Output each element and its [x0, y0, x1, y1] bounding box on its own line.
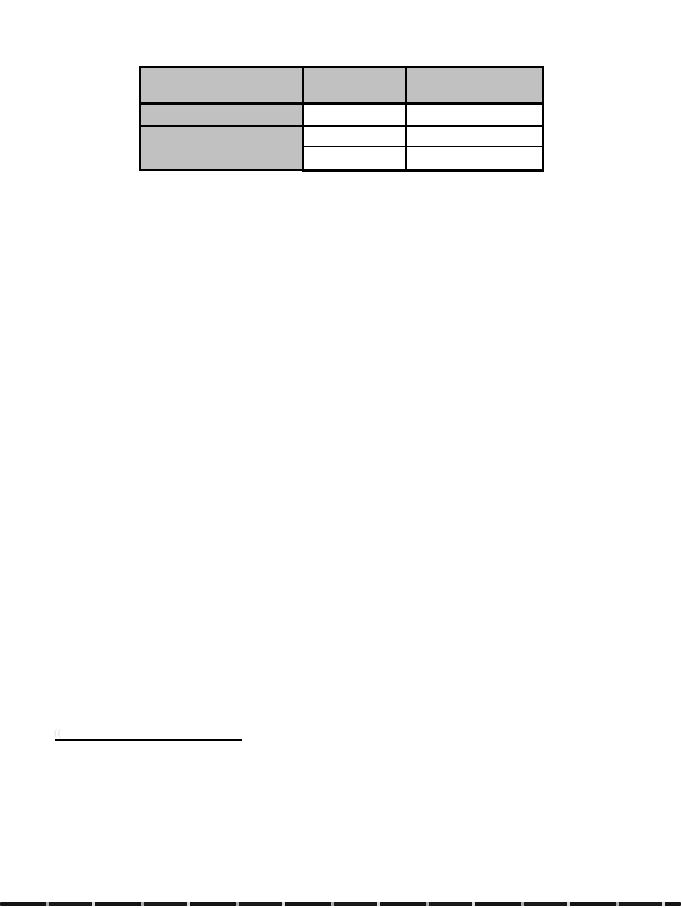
data-cell [303, 146, 406, 170]
document-page: (( [0, 0, 681, 908]
data-cell [406, 103, 543, 126]
row-label-cell [140, 103, 303, 126]
header-cell-col3 [406, 67, 543, 103]
data-cell [303, 126, 406, 146]
scanned-page-bottom-edge [0, 902, 681, 906]
table-row [140, 103, 543, 126]
table-header-row [140, 67, 543, 103]
table-row [140, 126, 543, 146]
scan-artifact-mark: (( [54, 726, 61, 738]
data-cell [303, 103, 406, 126]
data-cell [406, 126, 543, 146]
data-cell [406, 146, 543, 170]
header-cell-col2 [303, 67, 406, 103]
footnote-separator-rule [55, 739, 242, 741]
empty-data-table [139, 66, 544, 172]
row-label-cell-rowspan [140, 126, 303, 170]
header-cell-label [140, 67, 303, 103]
